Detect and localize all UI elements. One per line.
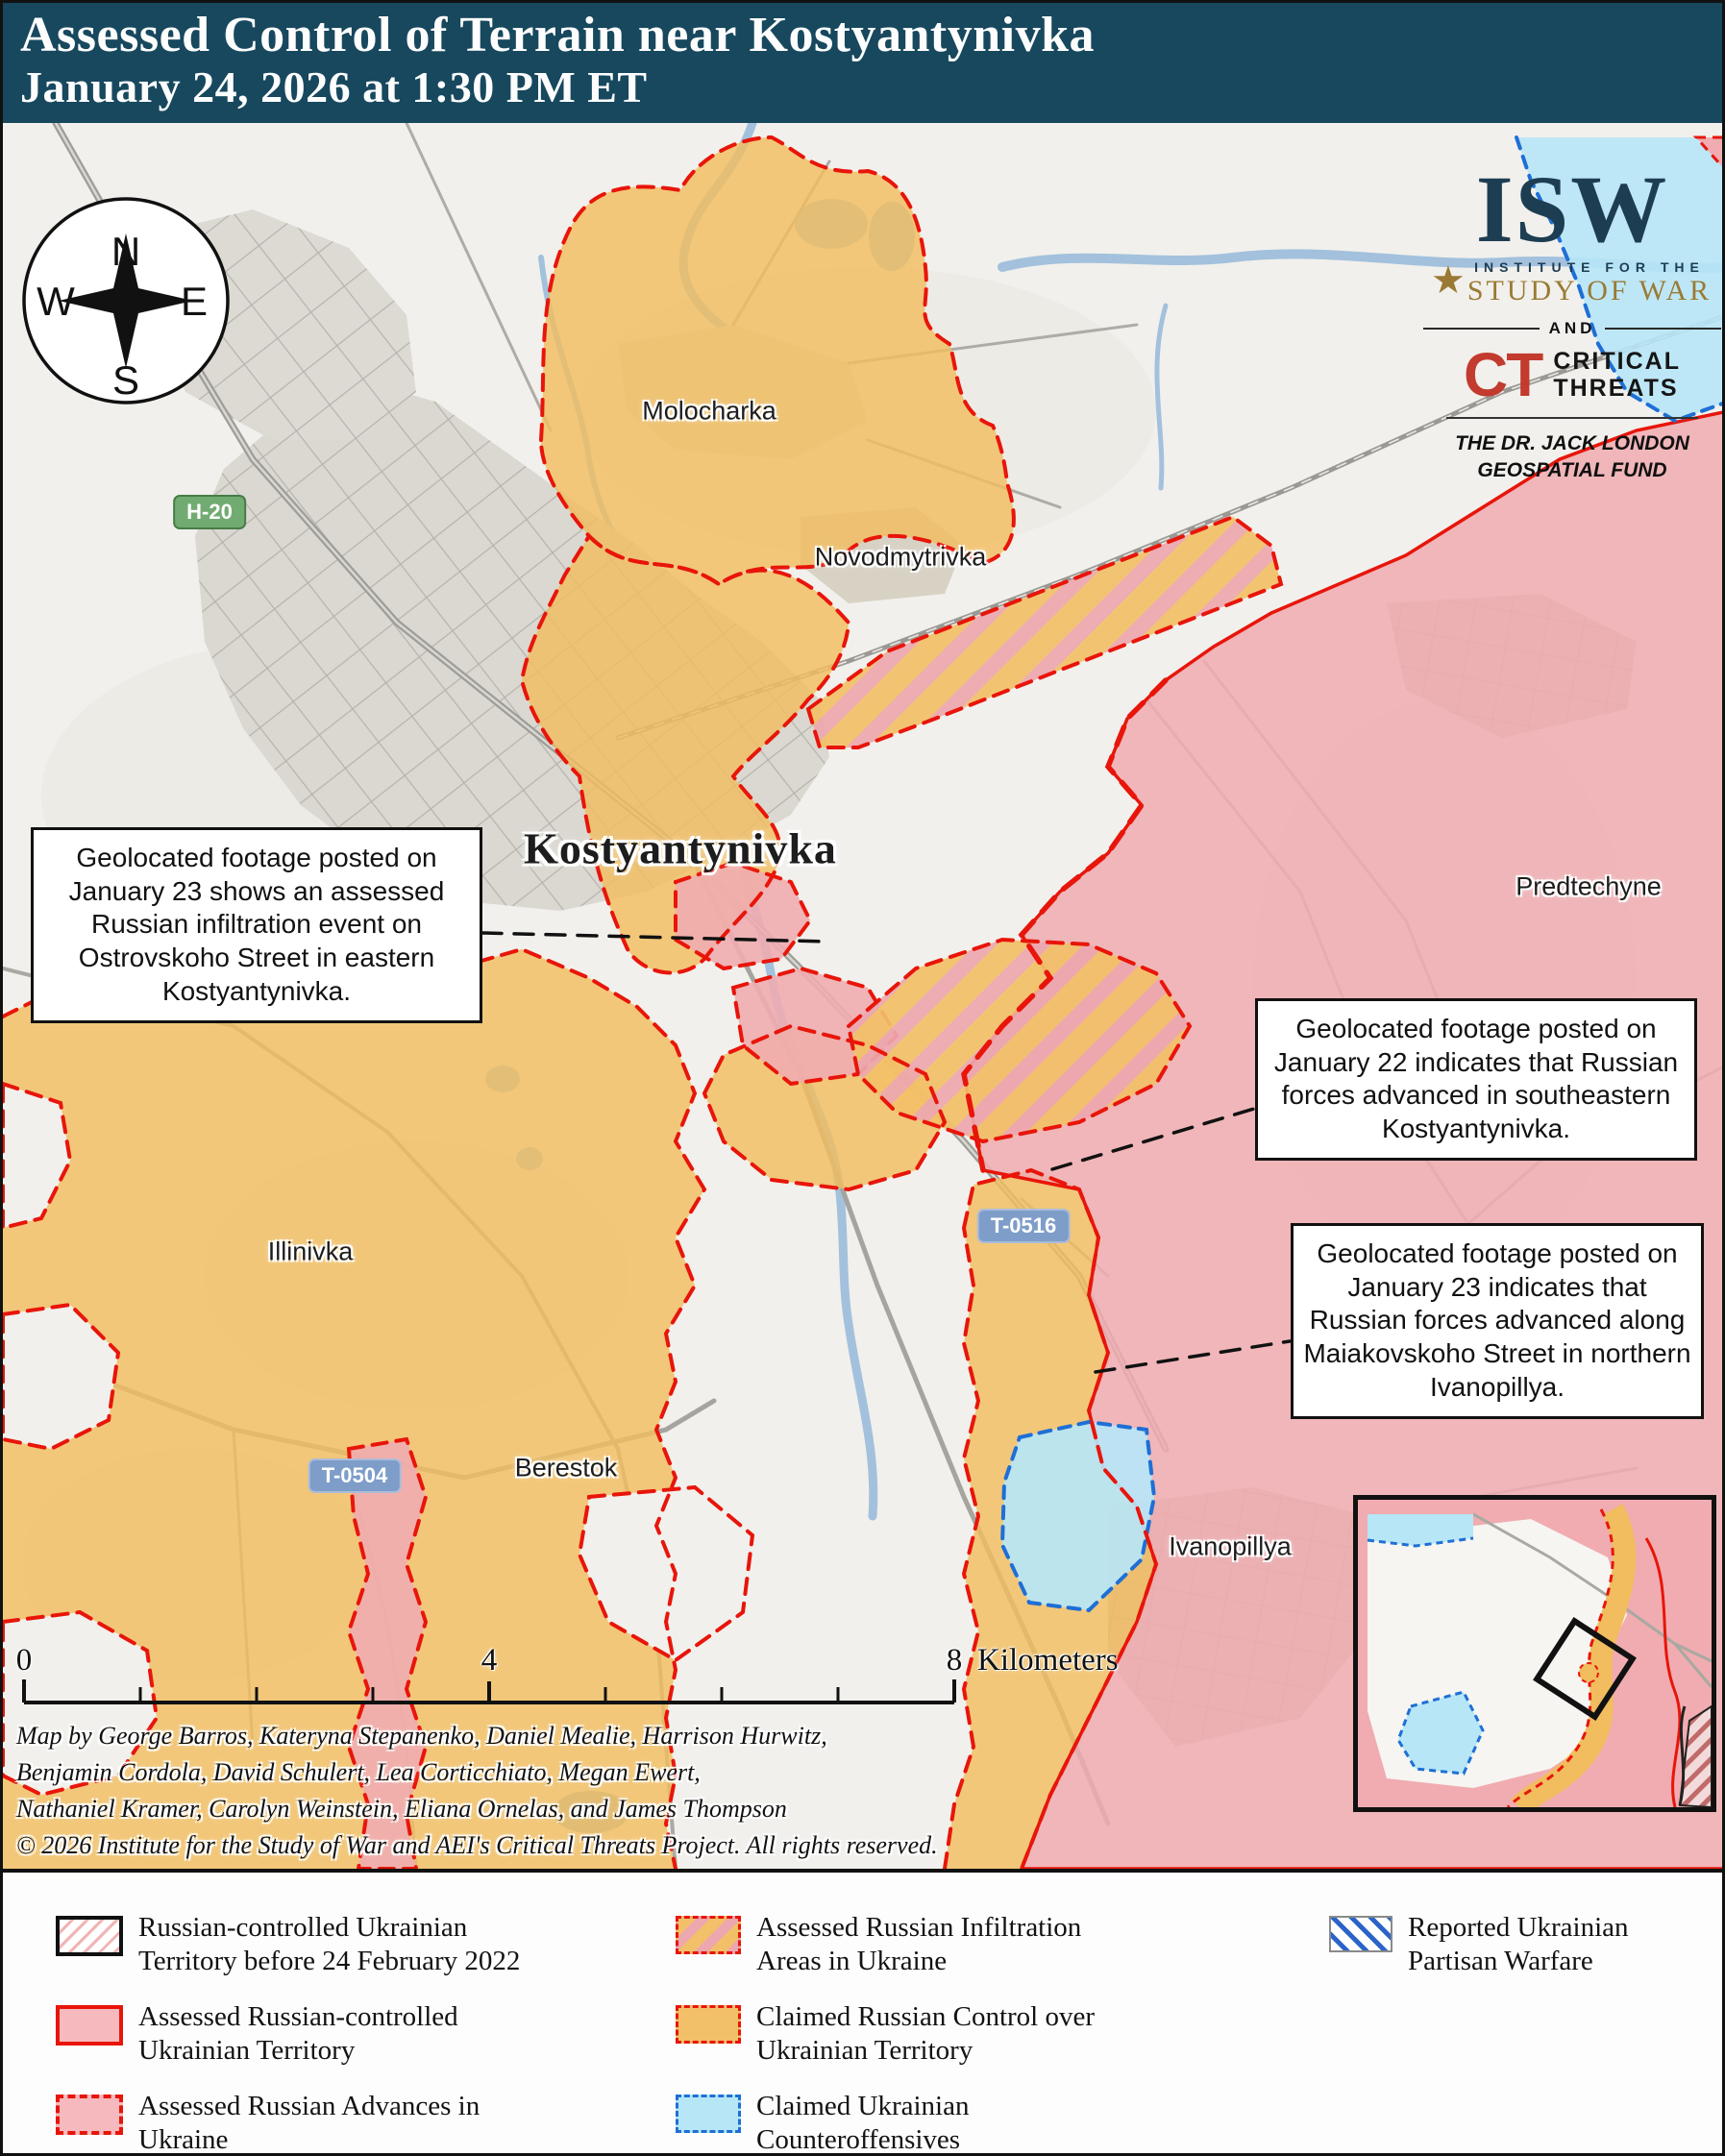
and-label: AND — [1549, 319, 1596, 338]
road-shield-h20: H-20 — [173, 495, 246, 529]
legend-item-infiltration: Assessed Russian Infiltration Areas in U… — [676, 1911, 1095, 1979]
legend-label: Assessed Russian-controlled — [138, 2001, 458, 2032]
legend-item-assessed: Assessed Russian-controlled Ukrainian Te… — [56, 2000, 520, 2069]
road-shield-t0516: T-0516 — [977, 1209, 1071, 1243]
legend-item-counteroffensives: Claimed Ukrainian Counteroffensives — [676, 2090, 1095, 2156]
callout-infiltration-ostrovskoho: Geolocated footage posted on January 23 … — [31, 827, 482, 1023]
map-credits: Map by George Barros, Kateryna Stepanenk… — [16, 1718, 938, 1864]
map-title: Assessed Control of Terrain near Kostyan… — [20, 9, 1705, 62]
callout-advance-se-kostyantynivka: Geolocated footage posted on January 22 … — [1255, 998, 1697, 1161]
place-label-berestok: Berestok — [515, 1454, 618, 1483]
map-datetime: January 24, 2026 at 1:30 PM ET — [20, 62, 1705, 112]
place-label-illinivka: Illinivka — [268, 1237, 354, 1267]
critical-threats-logo: CT CRITICAL THREATS — [1423, 346, 1721, 404]
legend-swatch-partisan — [1329, 1916, 1392, 1952]
credits-line3: Nathaniel Kramer, Carolyn Weinstein, Eli… — [16, 1791, 938, 1827]
compass-north-label: N — [111, 229, 140, 274]
isw-institute-label: INSTITUTE FOR THE — [1458, 259, 1721, 275]
isw-map-page: Assessed Control of Terrain near Kostyan… — [0, 0, 1725, 2156]
place-label-molocharka: Molocharka — [642, 397, 776, 427]
legend-label: Russian-controlled Ukrainian — [138, 1912, 467, 1943]
place-label-novodmytrivka: Novodmytrivka — [815, 543, 987, 573]
scale-bar: 0 4 8 Kilometers — [16, 1643, 1170, 1720]
scale-bar-ticks — [16, 1643, 1170, 1720]
isw-star-icon: ★ — [1431, 261, 1466, 300]
legend-label: Claimed Ukrainian — [756, 2091, 969, 2121]
credits-line1: Map by George Barros, Kateryna Stepanenk… — [16, 1718, 938, 1754]
legend-label: Reported Ukrainian — [1408, 1912, 1629, 1943]
legend-item-partisan: Reported Ukrainian Partisan Warfare — [1329, 1911, 1629, 1979]
legend: Russian-controlled Ukrainian Territory b… — [3, 1869, 1725, 2156]
legend-label: Claimed Russian Control over — [756, 2001, 1095, 2032]
ct-icon: CT — [1464, 346, 1541, 404]
ct-threats-label: THREATS — [1553, 375, 1681, 402]
legend-swatch-infiltration — [676, 1916, 741, 1954]
map-canvas: N E S W ISW ★ INSTITUTE FOR THE STUDY OF… — [3, 123, 1725, 1869]
place-label-predtechyne: Predtechyne — [1516, 872, 1662, 902]
road-shield-t0504: T-0504 — [308, 1458, 402, 1493]
isw-study-of-war-label: STUDY OF WAR — [1458, 275, 1721, 307]
branding-block: ISW ★ INSTITUTE FOR THE STUDY OF WAR AND… — [1423, 161, 1721, 484]
fund-line1: THE DR. JACK LONDON — [1423, 430, 1721, 457]
map-title-bar: Assessed Control of Terrain near Kostyan… — [3, 3, 1722, 123]
legend-swatch-prewar — [56, 1916, 123, 1956]
and-divider: AND — [1423, 319, 1721, 338]
brand-divider — [1446, 417, 1698, 419]
legend-item-advances: Assessed Russian Advances in Ukraine — [56, 2090, 520, 2156]
legend-label: Assessed Russian Advances in — [138, 2091, 480, 2121]
compass-rose-icon: N E S W — [15, 190, 236, 411]
compass-south-label: S — [112, 357, 139, 403]
compass-west-label: W — [37, 279, 75, 324]
ct-critical-label: CRITICAL — [1553, 348, 1681, 375]
callout-advance-maiakovskoho: Geolocated footage posted on January 23 … — [1291, 1223, 1704, 1419]
legend-label: Assessed Russian Infiltration — [756, 1912, 1081, 1943]
inset-locator-map — [1353, 1495, 1716, 1812]
fund-line2: GEOSPATIAL FUND — [1423, 457, 1721, 484]
legend-swatch-assessed — [56, 2005, 123, 2046]
place-label-kostyantynivka: Kostyantynivka — [524, 823, 837, 874]
credits-line4: © 2026 Institute for the Study of War an… — [16, 1827, 938, 1864]
place-label-ivanopillya: Ivanopillya — [1169, 1532, 1292, 1562]
credits-line2: Benjamin Cordola, David Schulert, Lea Co… — [16, 1754, 938, 1791]
legend-swatch-claimed — [676, 2005, 741, 2044]
compass-east-label: E — [181, 279, 208, 324]
legend-item-prewar: Russian-controlled Ukrainian Territory b… — [56, 1911, 520, 1979]
isw-logo: ISW — [1423, 161, 1721, 257]
legend-swatch-advances — [56, 2095, 123, 2135]
legend-item-claimed: Claimed Russian Control over Ukrainian T… — [676, 2000, 1095, 2069]
legend-swatch-counteroffensives — [676, 2095, 741, 2133]
